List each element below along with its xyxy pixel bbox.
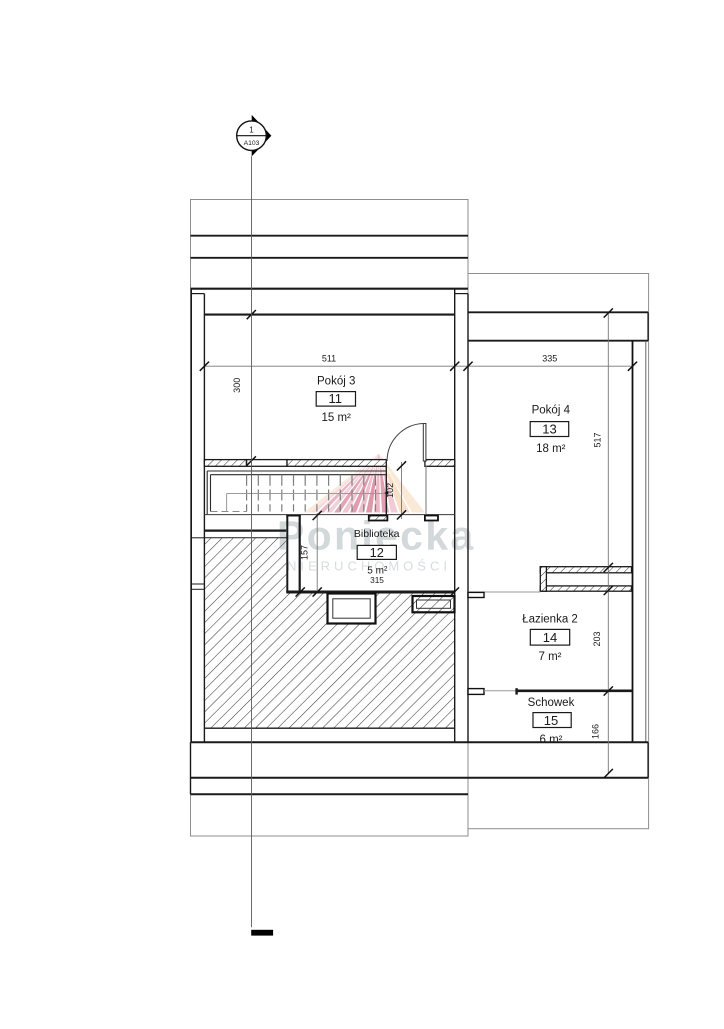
svg-text:11: 11 (329, 391, 343, 406)
svg-text:18 m²: 18 m² (536, 443, 566, 455)
svg-text:A103: A103 (244, 140, 260, 147)
svg-text:Łazienka 2: Łazienka 2 (522, 613, 578, 625)
svg-text:Biblioteka: Biblioteka (354, 528, 400, 540)
svg-text:203: 203 (592, 631, 602, 646)
svg-text:315: 315 (370, 575, 384, 585)
svg-text:Pokój 3: Pokój 3 (317, 376, 355, 388)
svg-text:511: 511 (322, 354, 336, 364)
svg-text:12: 12 (370, 545, 384, 560)
svg-text:15: 15 (544, 713, 558, 728)
svg-text:7 m²: 7 m² (539, 651, 562, 663)
svg-text:15 m²: 15 m² (321, 412, 351, 424)
svg-text:6 m²: 6 m² (540, 734, 563, 746)
svg-text:13: 13 (542, 422, 556, 437)
svg-text:157: 157 (300, 545, 310, 560)
svg-text:102: 102 (385, 483, 395, 498)
svg-text:Schowek: Schowek (528, 697, 575, 709)
svg-text:300: 300 (232, 378, 242, 393)
svg-text:14: 14 (543, 630, 557, 645)
svg-text:1: 1 (249, 125, 254, 134)
svg-text:335: 335 (542, 354, 557, 364)
svg-text:166: 166 (591, 724, 601, 739)
svg-text:Pokój 4: Pokój 4 (532, 404, 571, 416)
svg-text:517: 517 (593, 432, 603, 447)
